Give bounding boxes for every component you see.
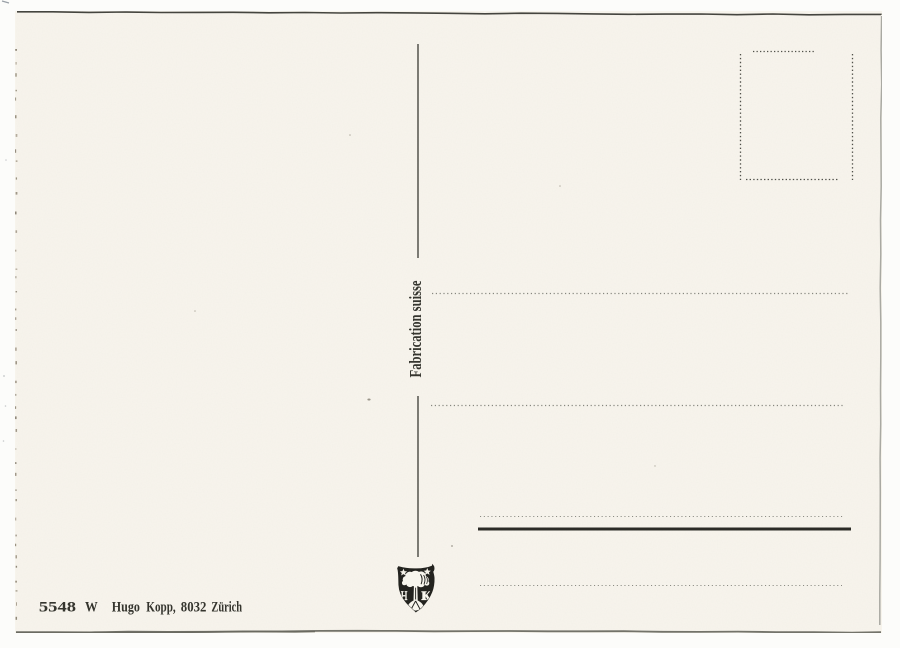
svg-text:Hugo: Hugo bbox=[112, 599, 140, 615]
svg-text:Kopp,: Kopp, bbox=[146, 599, 176, 615]
svg-text:5548: 5548 bbox=[39, 599, 76, 615]
svg-text:W: W bbox=[85, 599, 98, 615]
svg-text:Zürich: Zürich bbox=[211, 599, 242, 615]
svg-text:Fabrication suisse: Fabrication suisse bbox=[406, 280, 425, 377]
svg-text:8032: 8032 bbox=[181, 599, 207, 615]
